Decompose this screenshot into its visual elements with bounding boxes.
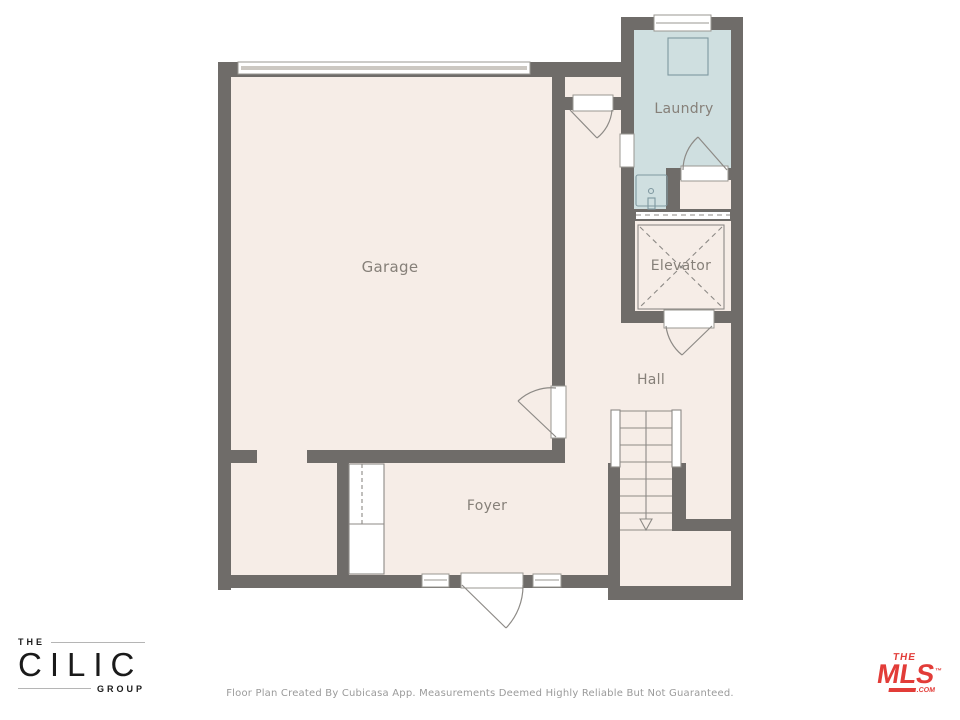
laundry-label: Laundry <box>634 101 734 117</box>
floor-plan-drawing <box>0 0 960 720</box>
cilic-group-logo: THE CILIC GROUP <box>18 637 145 694</box>
closet-body <box>349 464 384 574</box>
cilic-name-text: CILIC <box>18 648 145 683</box>
wall-laundry-left <box>621 17 634 221</box>
corridor-door-sill <box>573 95 613 111</box>
foyer-label: Foyer <box>437 498 537 514</box>
elevator-door-sill <box>664 310 714 328</box>
elevator-label: Elevator <box>631 258 731 274</box>
garage-storage-opening <box>257 450 307 463</box>
mls-name-text: MLS™ <box>875 663 949 687</box>
wall-left <box>218 62 231 590</box>
mls-trademark: ™ <box>934 668 942 675</box>
entry-door-sill <box>461 573 523 588</box>
laundry-side-opening <box>620 134 634 167</box>
garage-label: Garage <box>330 258 450 276</box>
foyer-room <box>349 463 608 575</box>
laundry-room <box>634 30 731 168</box>
stair-landing <box>618 531 731 586</box>
garage-door-sill <box>551 386 566 438</box>
wall-storage-divider <box>337 463 349 578</box>
themls-logo: THE MLS™ .COM <box>869 653 950 711</box>
floor-plan: Garage Laundry Elevator Hall Foyer <box>0 0 960 720</box>
wall-stair-left <box>608 463 620 586</box>
utility-nook <box>680 180 731 209</box>
stair-rail-right <box>672 410 681 467</box>
mls-name-letters: MLS <box>875 659 937 689</box>
disclaimer-text: Floor Plan Created By Cubicasa App. Meas… <box>0 688 960 699</box>
garage-door-panel <box>241 66 527 70</box>
stair-rail-left <box>611 410 620 467</box>
wall-bottom-right <box>608 586 743 600</box>
hall-label: Hall <box>601 372 701 388</box>
wall-landing-divider <box>672 519 731 531</box>
laundry-door-sill <box>681 166 728 181</box>
mls-underline-bar <box>888 688 916 692</box>
mls-com-text: .COM <box>916 687 935 694</box>
storage-room <box>231 463 337 575</box>
entry-door-swing <box>462 585 523 628</box>
cilic-top-rule <box>51 642 145 643</box>
closet <box>349 464 384 574</box>
